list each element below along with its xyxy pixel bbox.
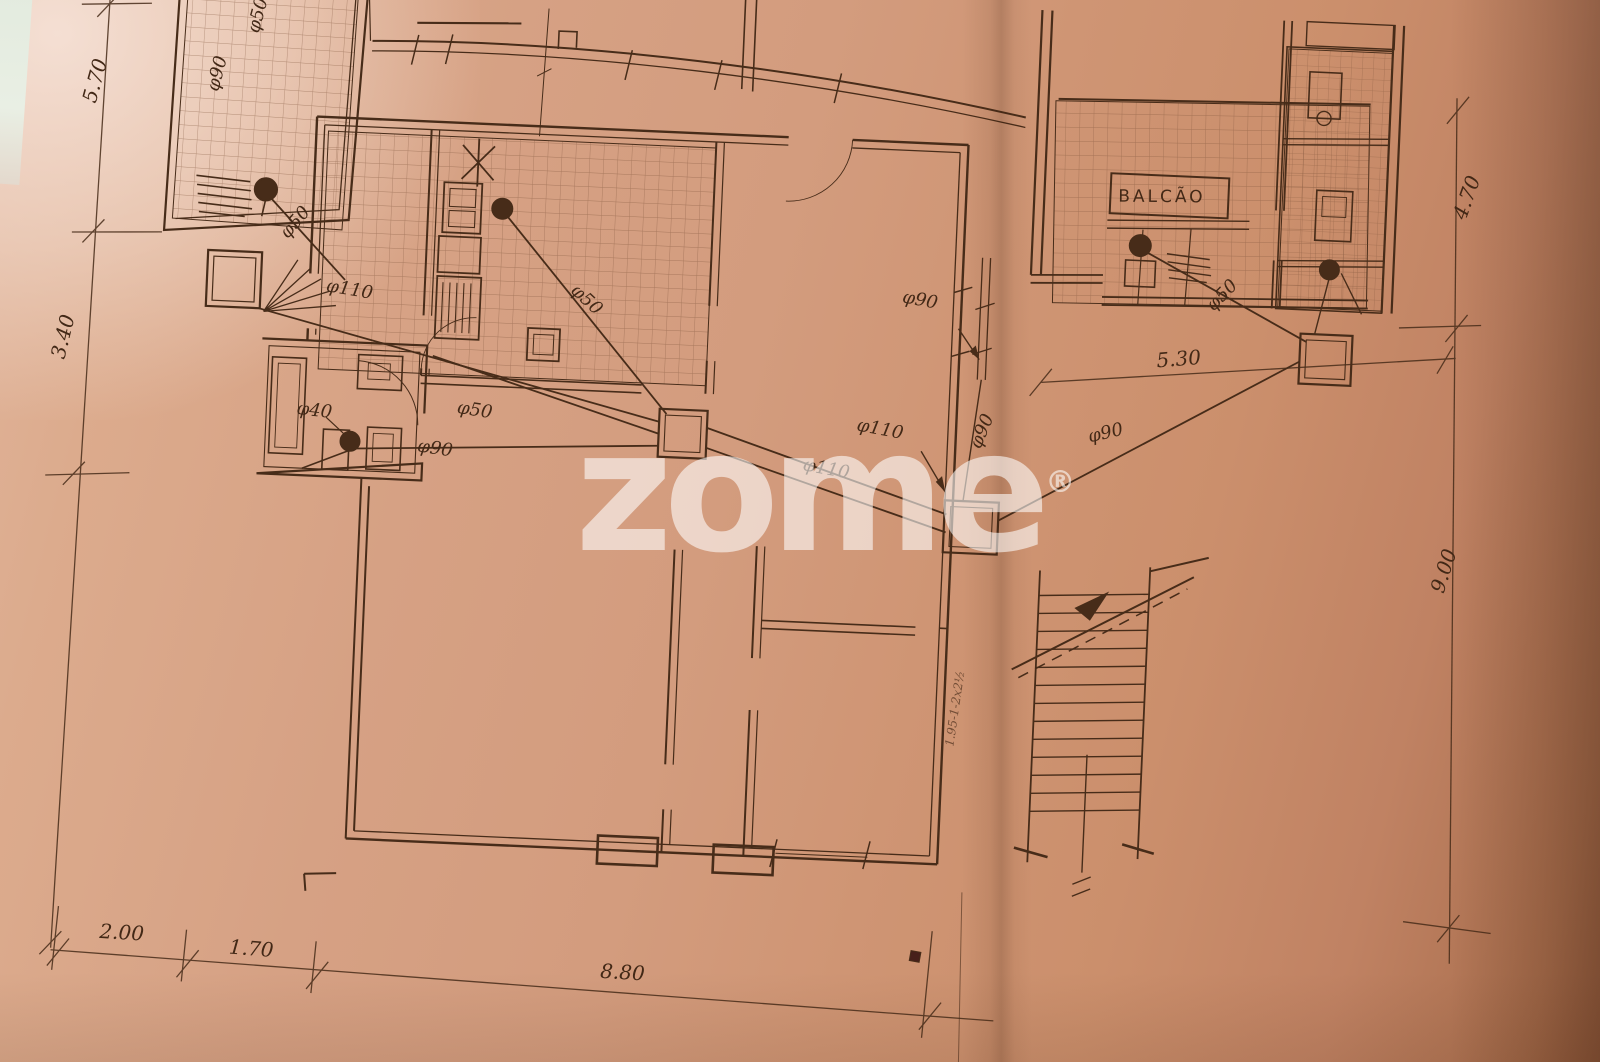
room-label-balcao: BALCÃO [1118,185,1206,208]
pipe-label: φ90 [965,411,998,452]
dim-label-right-side: 9.00 [1425,546,1461,596]
dim-label-bottom-3: 8.80 [600,959,646,986]
pipe-label: φ90 [416,435,454,461]
drain-icon [1129,234,1152,257]
pipe-label: φ110 [855,415,905,444]
dim-label-right-top: 4.70 [1447,172,1485,223]
pipe-label: φ90 [901,286,940,313]
plan-group: 5.70 3.40 2.00 1.70 8.80 4.70 9.00 5.30 … [17,0,1530,1062]
drain-icon [254,178,277,201]
pipe-label: φ40 [296,398,334,423]
window-ticks [770,837,870,871]
dim-label-left-top: 5.70 [77,56,112,106]
drain-icon [491,198,513,220]
downpipe [971,257,996,380]
dim-label-bottom-1: 2.00 [98,919,145,946]
small-square-mark [909,951,921,963]
dim-label-upper-right: 5.30 [1156,345,1203,372]
drain-icon [1319,259,1340,280]
staircase [1002,549,1209,901]
dim-label-bottom-2: 1.70 [228,935,275,962]
pipe-label: φ50 [456,397,494,423]
floor-plan-drawing: 5.70 3.40 2.00 1.70 8.80 4.70 9.00 5.30 … [0,0,1600,1062]
pipe-label: φ110 [801,454,851,483]
dim-label-left-mid: 3.40 [46,312,80,361]
blueprint-photo: 5.70 3.40 2.00 1.70 8.80 4.70 9.00 5.30 … [0,0,1600,1062]
pipe-label: φ90 [1086,419,1125,448]
